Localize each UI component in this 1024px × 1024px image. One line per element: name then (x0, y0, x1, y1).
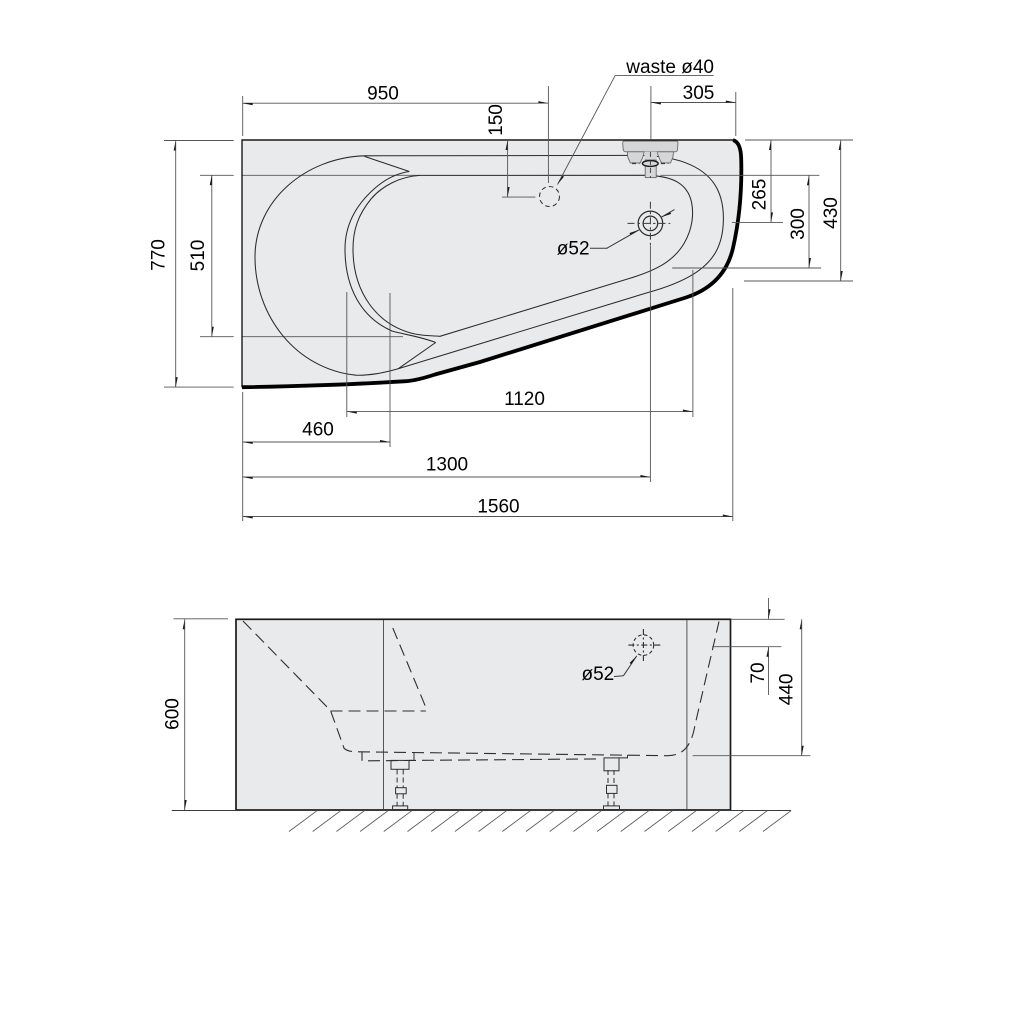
svg-text:950: 950 (367, 83, 399, 104)
svg-text:770: 770 (149, 239, 170, 271)
svg-text:305: 305 (683, 83, 715, 104)
svg-text:265: 265 (749, 179, 770, 211)
svg-text:waste ø40: waste ø40 (625, 57, 714, 78)
svg-text:440: 440 (777, 674, 798, 706)
svg-text:ø52: ø52 (557, 239, 590, 260)
svg-text:70: 70 (748, 662, 769, 683)
svg-text:1120: 1120 (504, 389, 545, 410)
svg-text:510: 510 (188, 240, 209, 272)
svg-text:600: 600 (163, 698, 184, 730)
svg-text:460: 460 (302, 420, 334, 441)
svg-text:430: 430 (821, 197, 842, 229)
svg-text:150: 150 (486, 104, 507, 136)
svg-text:ø52: ø52 (582, 664, 615, 685)
svg-text:1560: 1560 (477, 497, 519, 518)
svg-text:1300: 1300 (426, 455, 468, 476)
svg-text:300: 300 (788, 208, 809, 240)
